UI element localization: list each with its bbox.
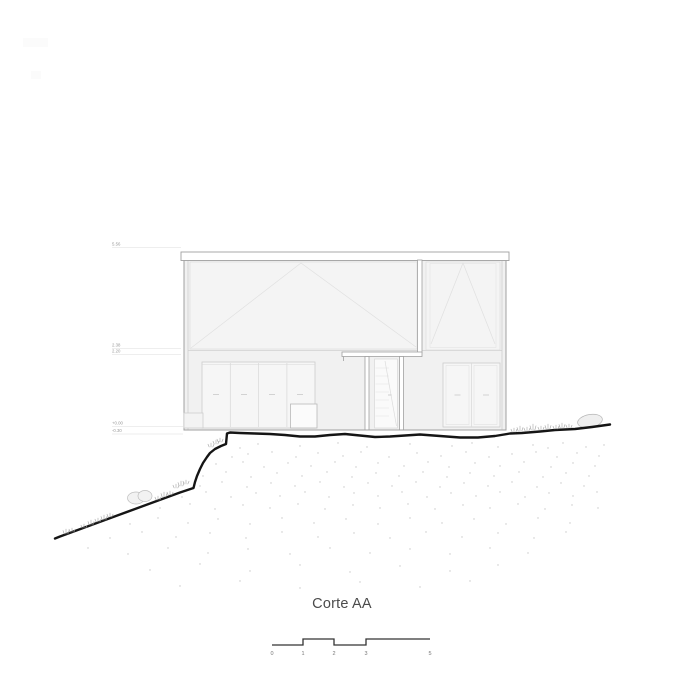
speckle-dot	[343, 486, 344, 487]
grass-tuft-icon	[167, 491, 173, 495]
speckle-dot	[87, 547, 88, 548]
speckle-dot	[295, 456, 296, 457]
section-sheet: 5.562.382.20+0.00-0.3001235 Corte AA	[0, 0, 700, 700]
speckle-dot	[369, 552, 370, 553]
logo-watermark	[31, 71, 41, 79]
speckle-dot	[388, 456, 389, 457]
speckle-dot	[313, 522, 314, 523]
grass-tuft-icon	[511, 428, 517, 432]
grass-tuft-icon	[155, 496, 161, 500]
speckle-dot	[299, 587, 300, 588]
speckle-dot	[239, 580, 240, 581]
speckle-dot	[301, 475, 302, 476]
speckle-dot	[299, 564, 300, 565]
speckle-dot	[440, 455, 441, 456]
speckle-dot	[416, 452, 417, 453]
speckle-dot	[463, 482, 464, 483]
grass-tuft-icon	[107, 513, 113, 517]
speckle-dot	[518, 471, 519, 472]
speckle-dot	[488, 456, 489, 457]
speckle-dot	[527, 552, 528, 553]
speckle-dot	[560, 482, 561, 483]
speckle-dot	[473, 518, 474, 519]
scale-number: 0	[270, 651, 273, 657]
speckle-dot	[257, 443, 258, 444]
speckle-dot	[401, 491, 402, 492]
speckle-dot	[511, 453, 512, 454]
speckle-dot	[377, 523, 378, 524]
grass-blade	[529, 428, 530, 431]
speckle-dot	[461, 536, 462, 537]
speckle-dot	[377, 462, 378, 463]
elevation-label: 2.38	[112, 343, 121, 348]
speckle-dot	[548, 492, 549, 493]
speckle-dot	[317, 452, 318, 453]
speckle-dot	[409, 517, 410, 518]
grass-blade	[188, 481, 189, 484]
speckle-dot	[263, 466, 264, 467]
grass-blade	[63, 531, 64, 535]
speckle-dot	[389, 537, 390, 538]
speckle-dot	[499, 465, 500, 466]
grass-blade	[173, 485, 174, 488]
speckle-dot	[493, 475, 494, 476]
speckle-dot	[246, 486, 247, 487]
grass-tuft-icon	[538, 426, 544, 430]
grass-tuft-icon	[524, 427, 530, 431]
speckle-dot	[565, 531, 566, 532]
speckle-dot	[426, 496, 427, 497]
grass-blade	[564, 425, 565, 429]
grass-tuft-icon	[530, 424, 536, 430]
speckle-dot	[572, 495, 573, 496]
grass-tuft-icon	[208, 443, 214, 447]
speckle-dot	[271, 451, 272, 452]
speckle-dot	[352, 504, 353, 505]
elevation-label: +0.00	[112, 421, 123, 426]
grass-tuft-icon	[95, 518, 101, 522]
speckle-dot	[446, 476, 447, 477]
speckle-dot	[337, 442, 338, 443]
speckle-dot	[345, 518, 346, 519]
speckle-dot	[576, 452, 577, 453]
kitchen-counter-block	[291, 404, 318, 428]
speckle-dot	[179, 585, 180, 586]
grass-tuft-icon	[88, 520, 94, 525]
speckle-dot	[294, 485, 295, 486]
speckle-dot	[465, 451, 466, 452]
grass-tuft-icon	[63, 529, 69, 534]
speckle-dot	[281, 517, 282, 518]
speckle-dot	[596, 491, 597, 492]
section-drawing-svg: 5.562.382.20+0.00-0.3001235	[0, 0, 700, 700]
speckle-dot	[242, 504, 243, 505]
grass-blade	[217, 439, 218, 442]
speckle-dot	[129, 523, 130, 524]
logo-watermark	[23, 38, 48, 47]
grass-blade	[88, 522, 89, 526]
grass-tuft-icon	[217, 438, 223, 442]
grass-blade	[538, 427, 539, 430]
speckle-dot	[565, 472, 566, 473]
roof-parapet-band	[181, 252, 509, 261]
speckle-dot	[469, 580, 470, 581]
grass-tuft-icon	[101, 515, 107, 520]
grass-blade	[155, 497, 156, 500]
speckle-dot	[379, 507, 380, 508]
stair-shaft-wall	[365, 357, 369, 431]
speckle-dot	[524, 496, 525, 497]
grass-tuft-icon	[69, 528, 75, 532]
speckle-dot	[281, 531, 282, 532]
speckle-dot	[409, 548, 410, 549]
speckle-dot	[342, 455, 343, 456]
speckle-dot	[487, 485, 488, 486]
speckle-dot	[523, 461, 524, 462]
speckle-dot	[469, 472, 470, 473]
grass-blade	[95, 519, 96, 522]
speckle-dot	[230, 496, 231, 497]
speckle-dot	[571, 504, 572, 505]
grass-blade	[571, 425, 572, 428]
speckle-dot	[245, 537, 246, 538]
speckle-dot	[239, 447, 240, 448]
speckle-dot	[377, 495, 378, 496]
grass-blade	[516, 429, 517, 432]
stair-shaft-wall	[400, 357, 404, 431]
speckle-dot	[276, 472, 277, 473]
speckle-dot	[583, 485, 584, 486]
grass-blade	[511, 429, 512, 432]
upper-right-window-panel	[426, 262, 500, 350]
scale-number: 3	[364, 651, 367, 657]
speckle-dot	[207, 552, 208, 553]
speckle-dot	[141, 531, 142, 532]
grass-blade	[553, 426, 554, 429]
speckle-dot	[299, 445, 300, 446]
bush	[138, 491, 152, 502]
speckle-dot	[594, 465, 595, 466]
speckle-dot	[422, 471, 423, 472]
scale-number: 5	[428, 651, 431, 657]
speckle-dot	[556, 456, 557, 457]
speckle-dot	[202, 475, 203, 476]
speckle-dot	[127, 553, 128, 554]
speckle-dot	[403, 465, 404, 466]
speckle-dot	[242, 461, 243, 462]
speckle-dot	[310, 465, 311, 466]
speckle-dot	[537, 517, 538, 518]
speckle-dot	[569, 522, 570, 523]
speckle-dot	[225, 471, 226, 472]
speckle-dot	[511, 481, 512, 482]
grass-blade	[522, 428, 523, 432]
speckle-dot	[289, 553, 290, 554]
speckle-dot	[505, 523, 506, 524]
speckle-dot	[497, 564, 498, 565]
left-plinth-block	[184, 413, 203, 428]
drawing-title: Corte AA	[0, 596, 684, 612]
terrain-speckles	[87, 442, 604, 588]
grass-blade	[543, 427, 544, 430]
grass-blade	[213, 441, 214, 444]
speckle-dot	[425, 531, 426, 532]
speckle-dot	[427, 461, 428, 462]
speckle-dot	[329, 547, 330, 548]
speckle-dot	[449, 553, 450, 554]
speckle-dot	[419, 586, 420, 587]
grass-blade	[558, 426, 559, 429]
speckle-dot	[334, 461, 335, 462]
speckle-dot	[249, 523, 250, 524]
speckle-dot	[497, 532, 498, 533]
speckle-dot	[499, 491, 500, 492]
speckle-dot	[535, 451, 536, 452]
speckle-dot	[391, 485, 392, 486]
speckle-dot	[214, 508, 215, 509]
speckle-dot	[250, 476, 251, 477]
scale-bar-line	[272, 639, 430, 645]
ground-terrain-line	[55, 425, 610, 539]
speckle-dot	[353, 532, 354, 533]
grass-blade	[566, 425, 567, 428]
speckle-dot	[415, 481, 416, 482]
speckle-dot	[533, 537, 534, 538]
speckle-dot	[209, 532, 210, 533]
grass-tuft-icon	[559, 423, 565, 428]
speckle-dot	[448, 466, 449, 467]
speckle-dot	[471, 442, 472, 443]
speckle-dot	[349, 571, 350, 572]
speckle-dot	[189, 503, 190, 504]
speckle-dot	[205, 491, 206, 492]
speckle-dot	[199, 485, 200, 486]
elevation-label: 5.56	[112, 242, 121, 247]
speckle-dot	[562, 442, 563, 443]
speckle-dot	[588, 475, 589, 476]
speckle-dot	[399, 565, 400, 566]
speckle-dot	[319, 481, 320, 482]
speckle-dot	[441, 522, 442, 523]
speckle-dot	[475, 495, 476, 496]
stair-door	[375, 359, 398, 428]
speckle-dot	[215, 463, 216, 464]
speckle-dot	[598, 455, 599, 456]
grass-blade	[550, 426, 551, 430]
speckle-dot	[407, 503, 408, 504]
speckle-dot	[409, 443, 410, 444]
grass-tuft-icon	[173, 484, 179, 488]
grass-blade	[161, 494, 162, 498]
scale-number: 1	[301, 651, 304, 657]
elevation-label: 2.20	[112, 349, 121, 354]
grass-tuft-icon	[545, 424, 551, 429]
grass-tuft-icon	[183, 480, 189, 484]
speckle-dot	[287, 462, 288, 463]
speckle-dot	[324, 508, 325, 509]
scale-number: 2	[332, 651, 335, 657]
speckle-dot	[175, 536, 176, 537]
speckle-dot	[462, 504, 463, 505]
grass-tuft-icon	[517, 426, 523, 431]
grass-tuft-icon	[553, 425, 559, 429]
speckle-dot	[187, 522, 188, 523]
speckle-dot	[360, 451, 361, 452]
speckle-dot	[572, 462, 573, 463]
speckle-dot	[326, 471, 327, 472]
speckle-dot	[149, 569, 150, 570]
speckle-dot	[517, 503, 518, 504]
speckle-dot	[585, 446, 586, 447]
speckle-dot	[255, 492, 256, 493]
speckle-dot	[199, 563, 200, 564]
speckle-dot	[532, 444, 533, 445]
speckle-dot	[550, 466, 551, 467]
grass-tuft-icon	[566, 424, 572, 428]
speckle-dot	[547, 447, 548, 448]
speckle-dot	[317, 536, 318, 537]
speckle-dot	[597, 507, 598, 508]
speckle-dot	[434, 508, 435, 509]
speckle-dot	[544, 508, 545, 509]
speckle-dot	[398, 475, 399, 476]
speckle-dot	[249, 570, 250, 571]
grass-blade	[222, 439, 223, 442]
speckle-dot	[328, 496, 329, 497]
grass-blade	[545, 426, 546, 430]
speckle-dot	[247, 453, 248, 454]
speckle-dot	[451, 445, 452, 446]
speckle-dot	[536, 486, 537, 487]
speckle-dot	[109, 537, 110, 538]
speckle-dot	[603, 444, 604, 445]
speckle-dot	[353, 492, 354, 493]
speckle-dot	[269, 507, 270, 508]
speckle-dot	[439, 486, 440, 487]
speckle-dot	[231, 456, 232, 457]
grass-tuft-icon	[161, 492, 167, 497]
speckle-dot	[474, 462, 475, 463]
speckle-dot	[359, 581, 360, 582]
speckle-dot	[167, 547, 168, 548]
speckle-dot	[351, 476, 352, 477]
speckle-dot	[497, 446, 498, 447]
speckle-dot	[217, 518, 218, 519]
speckle-dot	[449, 570, 450, 571]
grass-blade	[530, 426, 531, 430]
speckle-dot	[450, 492, 451, 493]
speckle-dot	[367, 482, 368, 483]
speckle-dot	[221, 481, 222, 482]
speckle-dot	[542, 476, 543, 477]
grass-blade	[208, 444, 209, 447]
elevation-label: -0.30	[112, 428, 122, 433]
speckle-dot	[489, 507, 490, 508]
speckle-dot	[279, 495, 280, 496]
speckle-dot	[270, 482, 271, 483]
interior-divider-wall	[418, 260, 423, 353]
speckle-dot	[181, 496, 182, 497]
grass-blade	[535, 426, 536, 430]
speckle-dot	[355, 466, 356, 467]
speckle-dot	[366, 446, 367, 447]
speckle-dot	[297, 503, 298, 504]
speckle-dot	[489, 547, 490, 548]
speckle-dot	[159, 507, 160, 508]
upper-left-glazing-panel	[190, 262, 417, 349]
soffit-beam	[342, 352, 422, 357]
speckle-dot	[157, 517, 158, 518]
speckle-dot	[375, 472, 376, 473]
speckle-dot	[247, 548, 248, 549]
grass-blade	[524, 428, 525, 431]
grass-blade	[213, 444, 214, 447]
speckle-dot	[304, 491, 305, 492]
